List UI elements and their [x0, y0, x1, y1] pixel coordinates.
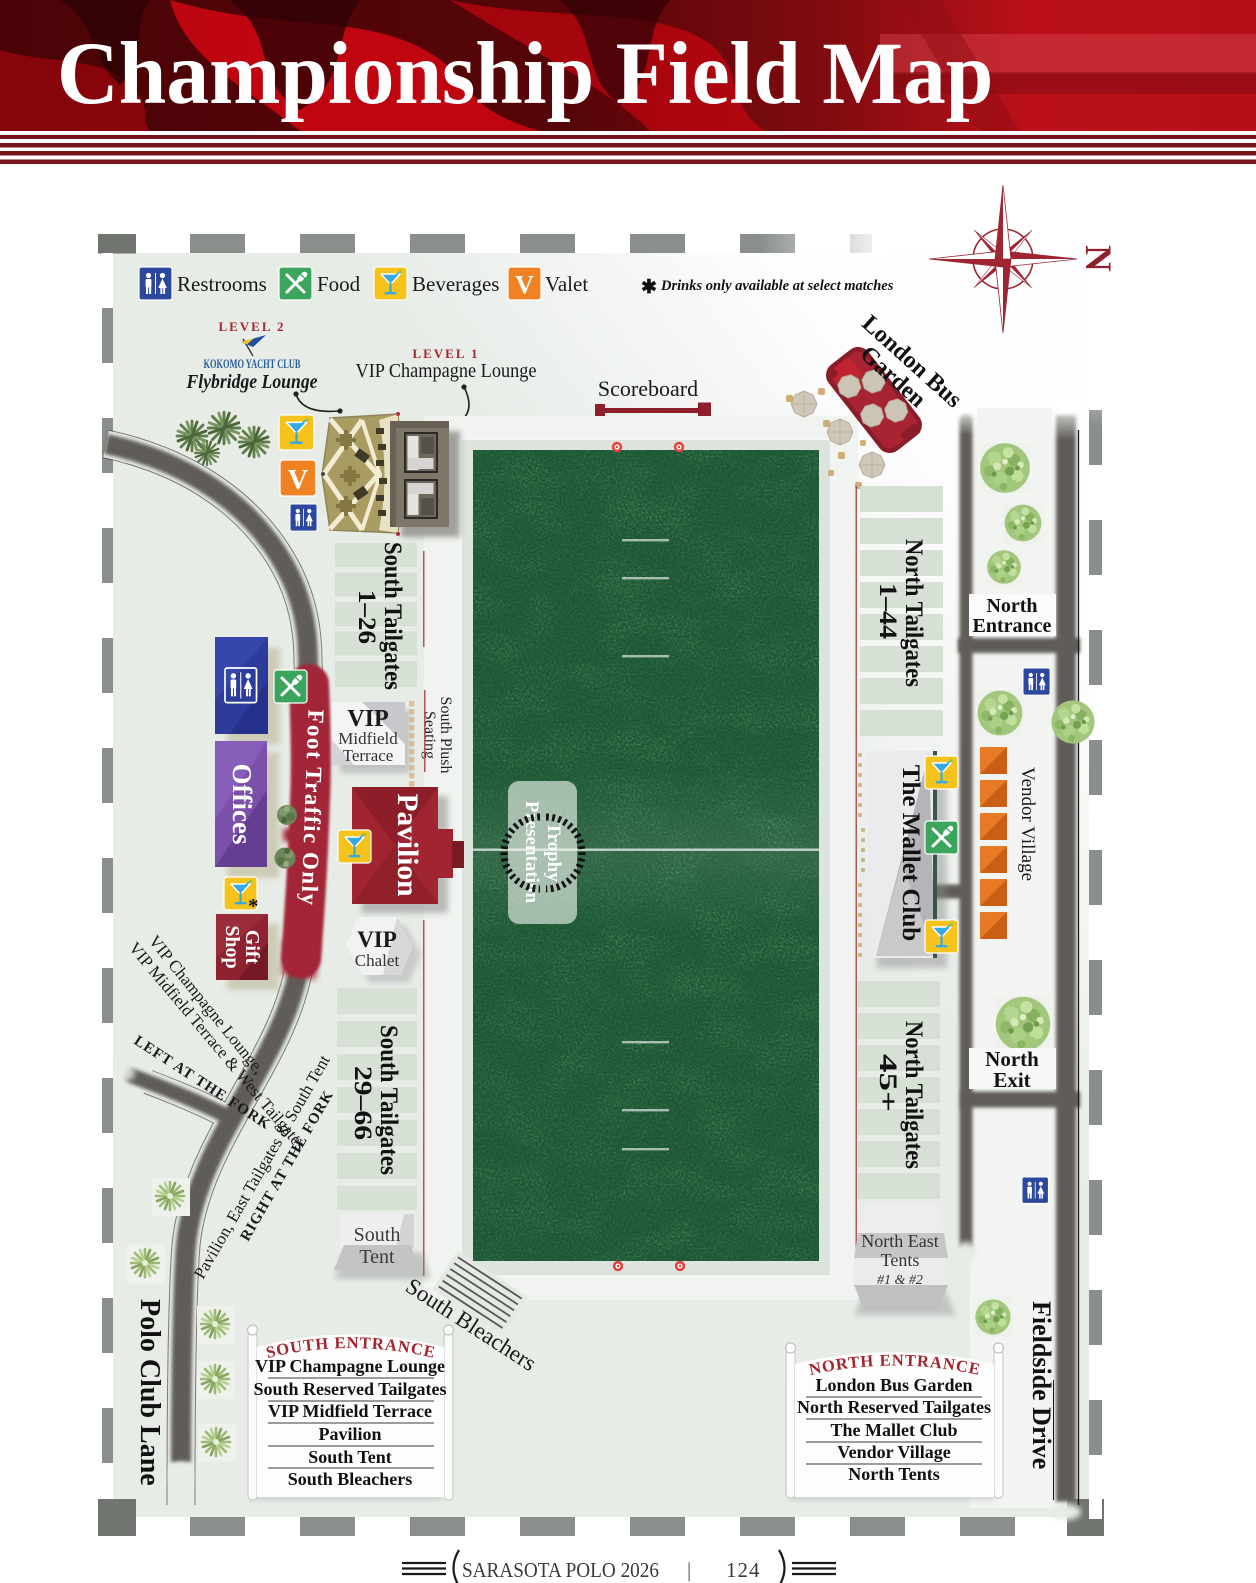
svg-text:Terrace: Terrace: [343, 746, 394, 765]
svg-text:LEVEL 1: LEVEL 1: [412, 346, 479, 361]
svg-text:North Tailgates: North Tailgates: [900, 539, 927, 687]
svg-text:Polo Club Lane: Polo Club Lane: [134, 1299, 165, 1486]
svg-text:#1 & #2: #1 & #2: [877, 1273, 923, 1288]
svg-text:South Tent: South Tent: [308, 1447, 392, 1467]
svg-text:Chalet: Chalet: [355, 951, 400, 970]
svg-text:Tent: Tent: [359, 1246, 395, 1268]
svg-text:45+: 45+: [874, 1054, 901, 1112]
svg-text:124: 124: [726, 1558, 761, 1582]
svg-text:North Reserved Tailgates: North Reserved Tailgates: [797, 1397, 991, 1417]
svg-text:VIP Midfield Terrace: VIP Midfield Terrace: [268, 1401, 432, 1421]
svg-text:South Plush: South Plush: [437, 697, 454, 774]
svg-text:Flybridge Lounge: Flybridge Lounge: [186, 372, 318, 393]
svg-text:KOKOMO YACHT CLUB: KOKOMO YACHT CLUB: [204, 356, 301, 371]
svg-text:N: N: [1077, 245, 1118, 272]
svg-text:Exit: Exit: [993, 1068, 1030, 1092]
svg-text:1–44: 1–44: [874, 583, 901, 640]
svg-text:|: |: [687, 1558, 691, 1582]
svg-text:Entrance: Entrance: [973, 615, 1052, 637]
svg-text:29–66: 29–66: [349, 1066, 376, 1140]
svg-text:1–26: 1–26: [353, 590, 380, 644]
svg-text:Pavilion: Pavilion: [391, 794, 424, 897]
svg-text:Vendor Village: Vendor Village: [837, 1442, 951, 1462]
svg-text:SARASOTA POLO 2026: SARASOTA POLO 2026: [462, 1558, 659, 1582]
svg-text:Fieldside Drive: Fieldside Drive: [1027, 1301, 1056, 1469]
svg-text:VIP: VIP: [357, 927, 397, 952]
svg-text:Trophy: Trophy: [543, 822, 564, 882]
svg-text:South Bleachers: South Bleachers: [288, 1469, 413, 1489]
svg-text:North Tents: North Tents: [848, 1464, 940, 1484]
svg-text:South Tailgates: South Tailgates: [379, 542, 406, 690]
svg-text:Gift: Gift: [241, 930, 263, 965]
svg-text:Seating: Seating: [421, 711, 438, 759]
svg-text:Restrooms: Restrooms: [177, 272, 267, 296]
svg-text:VIP Champagne Lounge: VIP Champagne Lounge: [255, 1356, 445, 1376]
svg-text:South Tailgates: South Tailgates: [375, 1025, 402, 1175]
svg-text:Beverages: Beverages: [412, 272, 499, 296]
svg-text:VIP Champagne Lounge: VIP Champagne Lounge: [356, 360, 537, 382]
svg-text:North East: North East: [861, 1231, 938, 1251]
svg-text:The Mallet Club: The Mallet Club: [897, 765, 924, 941]
svg-text:Scoreboard: Scoreboard: [598, 376, 698, 401]
svg-text:North: North: [986, 595, 1037, 617]
svg-text:LEVEL 2: LEVEL 2: [218, 319, 285, 334]
svg-text:The Mallet Club: The Mallet Club: [830, 1420, 957, 1440]
svg-text:South Reserved Tailgates: South Reserved Tailgates: [253, 1379, 446, 1399]
svg-text:Pavilion: Pavilion: [318, 1424, 381, 1444]
svg-text:Valet: Valet: [545, 272, 588, 296]
svg-text:Food: Food: [317, 272, 361, 296]
svg-text:South: South: [354, 1224, 401, 1246]
svg-text:Shop: Shop: [221, 925, 243, 968]
svg-text:Vendor Village: Vendor Village: [1017, 767, 1038, 881]
svg-text:Tents: Tents: [881, 1250, 920, 1270]
svg-text:Offices: Offices: [227, 764, 257, 845]
svg-text:Drinks only available at selec: Drinks only available at select matches: [660, 278, 894, 294]
svg-text:North Tailgates: North Tailgates: [900, 1021, 927, 1169]
svg-text:✱: ✱: [641, 277, 657, 298]
svg-text:London Bus Garden: London Bus Garden: [815, 1375, 972, 1395]
